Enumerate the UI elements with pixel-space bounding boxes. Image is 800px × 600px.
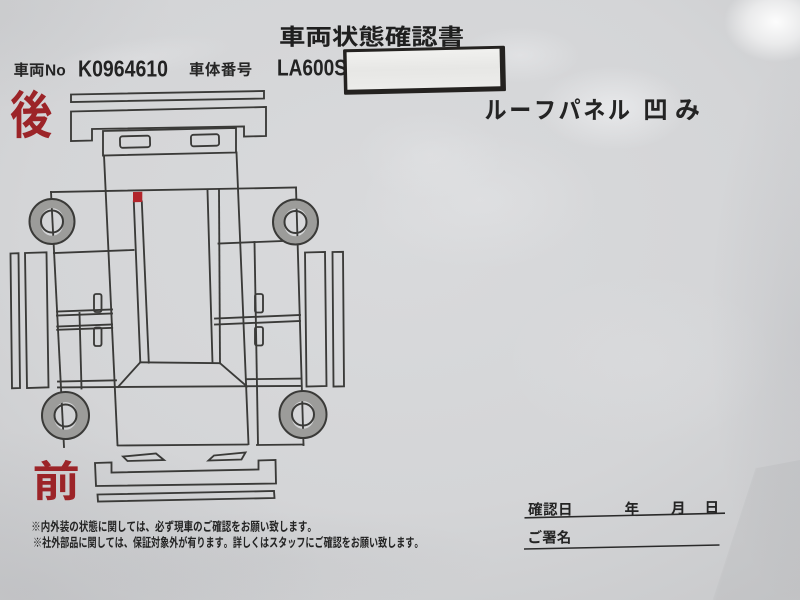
svg-text:No: No: [45, 63, 66, 80]
svg-text:K0964610: K0964610: [78, 56, 168, 82]
svg-text:LA600S: LA600S: [277, 55, 347, 81]
